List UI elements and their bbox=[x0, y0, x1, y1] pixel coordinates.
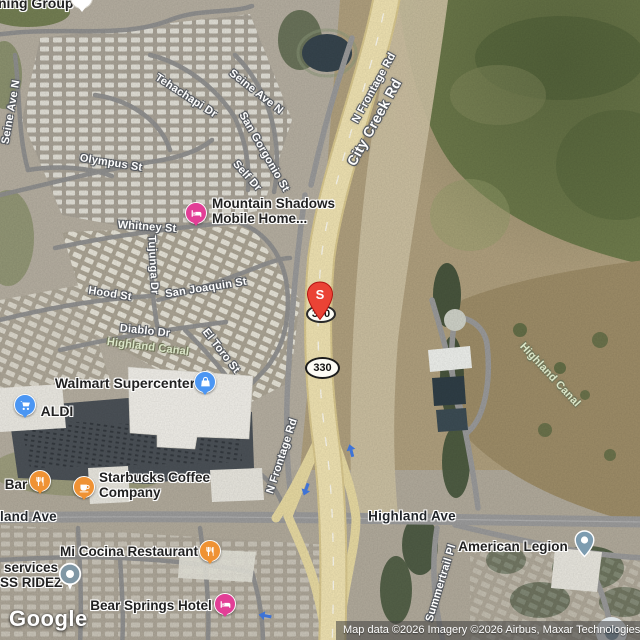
poi-label-walmart[interactable]: Walmart Supercenter bbox=[55, 376, 195, 391]
shopping-cart-icon bbox=[19, 399, 32, 412]
teardrop-pin-icon bbox=[574, 530, 595, 558]
road-label-highland-ave-cut: land Ave bbox=[0, 509, 57, 524]
restaurant-icon-mi-cocina[interactable] bbox=[199, 540, 221, 562]
destination-pin-label: S bbox=[316, 287, 325, 302]
poi-label-aldi[interactable]: ALDI bbox=[41, 404, 74, 419]
red-pin-icon: S bbox=[306, 281, 334, 321]
poi-label-line: Starbucks Coffee bbox=[99, 471, 210, 486]
shopping-bag-icon bbox=[199, 376, 212, 389]
poi-label-line: Mobile Home... bbox=[212, 212, 335, 227]
lodging-icon-mountain-shadows[interactable] bbox=[185, 202, 207, 224]
poi-label-bear-springs[interactable]: Bear Springs Hotel bbox=[90, 599, 212, 614]
poi-label-line: SS RIDEZ bbox=[0, 576, 58, 591]
poi-label-mi-cocina[interactable]: Mi Cocina Restaurant bbox=[60, 545, 198, 560]
shopping-icon-walmart[interactable] bbox=[194, 371, 216, 393]
bed-icon bbox=[190, 207, 203, 220]
poi-label-starbucks[interactable]: Starbucks Coffee Company bbox=[99, 471, 210, 500]
map-canvas[interactable]: Seine Ave N Tehachapi Dr Seine Ave N San… bbox=[0, 0, 640, 640]
lodging-icon-bear-springs[interactable] bbox=[214, 593, 236, 615]
fork-knife-icon bbox=[204, 545, 217, 558]
road-label-highland-ave: Highland Ave bbox=[368, 509, 456, 524]
poi-label-line: services bbox=[0, 561, 58, 576]
coffee-icon-starbucks[interactable] bbox=[73, 476, 95, 498]
route-shield-text: 330 bbox=[313, 362, 331, 374]
map-attribution: Map data ©2026 Imagery ©2026 Airbus, Max… bbox=[336, 621, 640, 640]
poi-label-mountain-shadows[interactable]: Mountain Shadows Mobile Home... bbox=[212, 197, 335, 226]
bed-icon bbox=[219, 598, 232, 611]
poi-label-line: Company bbox=[99, 486, 210, 501]
fork-knife-icon bbox=[34, 475, 47, 488]
poi-label-american-legion[interactable]: American Legion bbox=[458, 540, 568, 555]
coffee-cup-icon bbox=[78, 481, 91, 494]
route-shield-330: 330 bbox=[305, 357, 340, 379]
generic-pin-icon-american-legion[interactable] bbox=[574, 530, 595, 563]
generic-pin-icon-ss-ridez[interactable] bbox=[58, 562, 82, 597]
dot-pin-icon bbox=[58, 562, 82, 592]
poi-label-line: Mountain Shadows bbox=[212, 197, 335, 212]
destination-pin[interactable]: S bbox=[306, 281, 334, 326]
restaurant-icon-bar[interactable] bbox=[29, 470, 51, 492]
poi-label-bar[interactable]: Bar bbox=[5, 478, 28, 493]
shopping-icon-aldi[interactable] bbox=[14, 394, 36, 416]
poi-label-ning-group[interactable]: ning Group bbox=[0, 0, 73, 11]
poi-label-services-ss-ridez[interactable]: services SS RIDEZ bbox=[0, 561, 58, 590]
google-logo[interactable]: Google bbox=[9, 606, 88, 632]
